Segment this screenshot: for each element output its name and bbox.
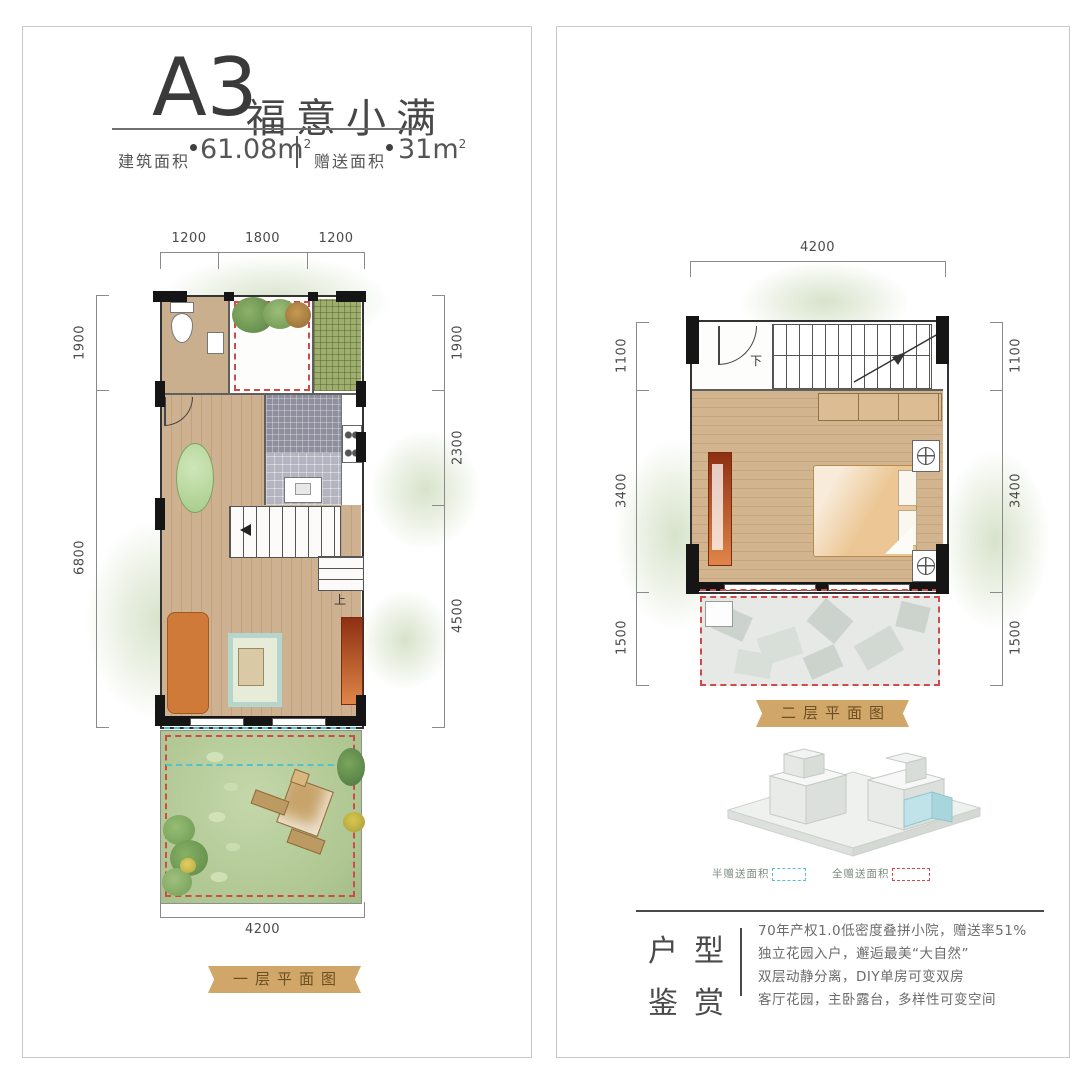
legend-half-label: 半赠送面积 [712, 866, 770, 881]
dim-tick [990, 322, 1003, 323]
stair-direction-arrow [240, 524, 251, 536]
dim-line [96, 295, 97, 728]
dim-label: 1900 [451, 313, 466, 373]
wardrobe [818, 393, 942, 421]
bathroom-sink [207, 332, 224, 354]
dim-tick [96, 295, 109, 296]
terrace-planter [705, 601, 733, 627]
bush [343, 812, 365, 832]
coffee-table [238, 648, 264, 686]
wall-pier [308, 292, 318, 301]
dim-tick [432, 295, 445, 296]
trellis-garden [314, 299, 361, 391]
unit-code: A3 [152, 48, 258, 128]
half-gift-line [164, 727, 356, 729]
bush [337, 748, 365, 786]
wall-pier [686, 544, 699, 594]
nightstand-lamp [912, 440, 940, 472]
dim-label: 4500 [451, 586, 466, 646]
area1-sup: 2 [304, 137, 312, 151]
bush [180, 858, 196, 873]
door-leaf [718, 326, 720, 364]
partition [228, 297, 230, 393]
cabinet-panel [712, 464, 723, 550]
dim-line [690, 261, 946, 262]
stairs-turn [318, 556, 364, 591]
dim-label: 1200 [307, 231, 365, 246]
dim-label: 1800 [218, 231, 307, 246]
description-line: 客厅花园，主卧露台，多样性可变空间 [758, 989, 1058, 1012]
dim-label: 4200 [690, 240, 945, 255]
legend-full-swatch [892, 868, 930, 881]
toilet-tank [170, 302, 194, 313]
pillow [898, 470, 917, 506]
description-line: 双层动静分离，DIY单房可变双房 [758, 966, 1058, 989]
dim-tick [432, 505, 445, 506]
legend-half-swatch [772, 868, 806, 881]
wall-pier [356, 695, 366, 726]
dim-label: 1100 [615, 326, 630, 386]
dim-line [160, 917, 365, 918]
wall-pier [155, 498, 165, 530]
description: 70年产权1.0低密度叠拼小院，赠送率51% 独立花园入户，邂逅最美“大自然” … [758, 920, 1058, 1012]
description-line: 70年产权1.0低密度叠拼小院，赠送率51% [758, 920, 1058, 943]
area2-label: 赠送面积 [314, 148, 386, 172]
partition [692, 389, 943, 391]
wall-pier [936, 316, 949, 364]
dim-label: 1900 [73, 313, 88, 373]
sink-basin [295, 483, 311, 495]
terrace-gift-outline [700, 596, 940, 686]
dim-label: 6800 [73, 528, 88, 588]
dim-label: 1100 [1009, 326, 1024, 386]
stepping-stones [195, 745, 255, 895]
plan1-banner: 一层平面图 [208, 966, 361, 993]
dim-tick [432, 390, 445, 391]
wall-pier [356, 432, 366, 462]
dim-line [160, 252, 365, 253]
wall-pier [936, 544, 949, 594]
dim-label: 2300 [451, 418, 466, 478]
area1-number: 61.08m [200, 134, 304, 165]
tv-cabinet [341, 617, 363, 705]
dim-tick [945, 261, 946, 277]
partition [312, 297, 314, 393]
area2-sup: 2 [459, 137, 467, 151]
dim-tick [96, 390, 109, 391]
title-underline [112, 128, 420, 130]
legend-full-label: 全赠送面积 [832, 866, 890, 881]
dim-label: 4200 [160, 922, 365, 937]
title-divider [740, 928, 742, 996]
dim-tick [364, 252, 365, 269]
dim-tick [364, 902, 365, 917]
stair-direction-diagonal [848, 326, 944, 388]
section-title: 户 型 鉴 赏 [648, 926, 730, 1022]
wall-pier [155, 381, 165, 407]
title-char: 鉴 [648, 978, 684, 1022]
note-dot [386, 144, 393, 151]
description-line: 独立花园入户，邂逅最美“大自然” [758, 943, 1058, 966]
dim-tick [307, 252, 308, 269]
dim-label: 3400 [615, 461, 630, 521]
dining-table [176, 443, 214, 513]
wall-pier [336, 291, 366, 302]
header-divider [296, 136, 298, 168]
wall-pier [153, 291, 187, 302]
dim-tick [160, 902, 161, 917]
title-char: 型 [694, 926, 730, 970]
gift-line [700, 589, 938, 591]
section-divider [636, 910, 1044, 912]
dim-line [444, 295, 445, 728]
dim-tick [160, 252, 161, 269]
greenery-blob [360, 590, 450, 690]
dim-tick [218, 252, 219, 269]
dim-label: 1500 [1009, 608, 1024, 668]
dim-tick [636, 390, 649, 391]
dim-tick [990, 390, 1003, 391]
dim-tick [636, 685, 649, 686]
title-char: 户 [648, 926, 684, 970]
dim-tick [636, 322, 649, 323]
area1-value: 61.08m2 [200, 134, 311, 165]
wall-pier [155, 695, 165, 726]
dim-label: 1200 [160, 231, 218, 246]
plan2-banner: 二层平面图 [756, 700, 909, 727]
wall-pier [224, 292, 234, 301]
dim-tick [432, 727, 445, 728]
dim-tick [96, 727, 109, 728]
area1-label: 建筑面积 [118, 148, 190, 172]
window [190, 718, 244, 726]
axonometric-model [718, 738, 988, 863]
dim-tick [990, 592, 1003, 593]
dim-label: 3400 [1009, 461, 1024, 521]
title-char: 赏 [694, 978, 730, 1022]
window [272, 718, 326, 726]
note-dot [190, 144, 197, 151]
dim-tick [990, 685, 1003, 686]
plant [285, 302, 311, 328]
dim-tick [636, 592, 649, 593]
stair-up-label: 上 [334, 591, 346, 608]
dim-tick [690, 261, 691, 277]
wall-pier [356, 381, 366, 407]
floorplan-poster: A3 福意小满 建筑面积 61.08m2 赠送面积 31m2 [0, 0, 1080, 1080]
dim-label: 1500 [615, 608, 630, 668]
wall-pier [686, 316, 699, 364]
area2-number: 31m [398, 134, 459, 165]
greenery-blob [940, 450, 1050, 630]
stair-down-label: 下 [750, 352, 762, 369]
dim-line [1002, 322, 1003, 686]
dim-line [636, 322, 637, 686]
sofa [167, 612, 209, 714]
area2-value: 31m2 [398, 134, 466, 165]
